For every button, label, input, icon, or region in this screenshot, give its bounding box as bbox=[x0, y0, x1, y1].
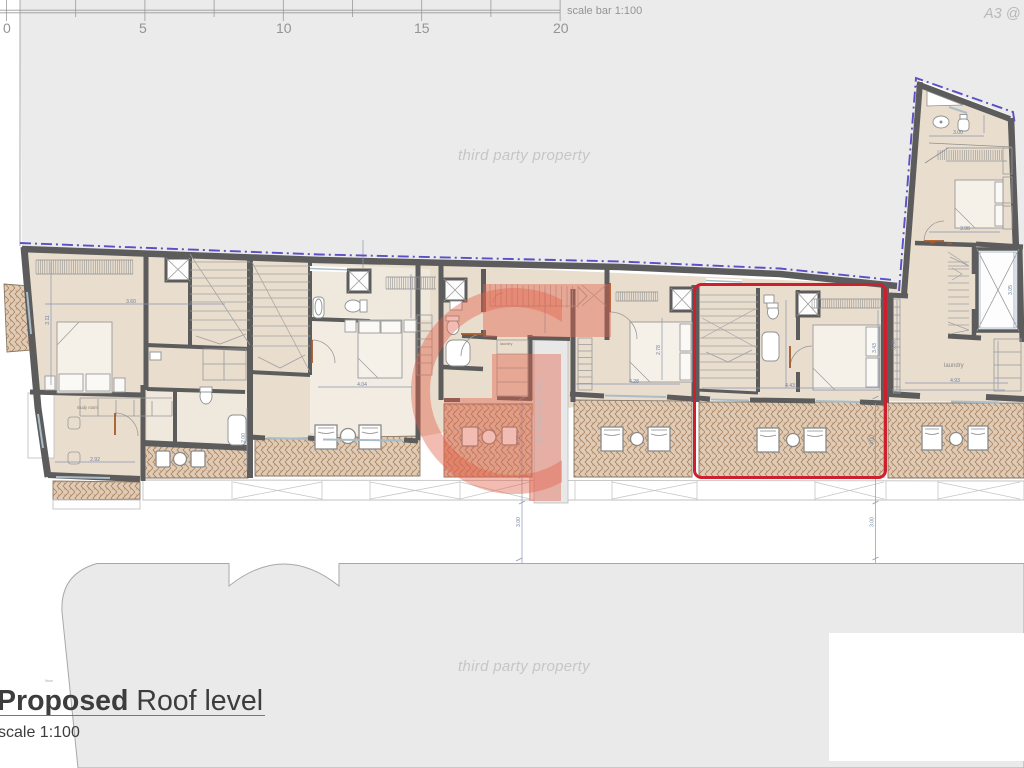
svg-text:3.00: 3.00 bbox=[870, 517, 876, 527]
svg-text:3.98: 3.98 bbox=[960, 226, 970, 232]
svg-text:2.92: 2.92 bbox=[90, 457, 100, 463]
svg-text:2.00: 2.00 bbox=[241, 433, 247, 443]
svg-text:20: 20 bbox=[553, 20, 569, 36]
svg-text:study room: study room bbox=[77, 405, 98, 410]
svg-text:scale 1:100: scale 1:100 bbox=[0, 724, 80, 741]
svg-text:4.43: 4.43 bbox=[785, 383, 795, 389]
svg-text:third party property: third party property bbox=[536, 377, 543, 444]
svg-text:4.04: 4.04 bbox=[357, 382, 367, 388]
svg-text:4.28: 4.28 bbox=[629, 379, 639, 385]
svg-text:0: 0 bbox=[3, 20, 11, 36]
svg-text:Proposed Roof level: Proposed Roof level bbox=[0, 685, 263, 717]
svg-text:2.78: 2.78 bbox=[656, 345, 662, 355]
svg-text:third party property: third party property bbox=[458, 147, 591, 164]
svg-text:3.05: 3.05 bbox=[1008, 285, 1014, 295]
svg-text:3.00: 3.00 bbox=[870, 435, 876, 445]
svg-text:laundry: laundry bbox=[500, 342, 513, 346]
svg-text:third party property: third party property bbox=[458, 658, 591, 675]
svg-text:3.11: 3.11 bbox=[45, 315, 51, 325]
svg-text:4.93: 4.93 bbox=[950, 378, 960, 384]
svg-text:A3 @: A3 @ bbox=[983, 6, 1020, 22]
svg-text:3.43: 3.43 bbox=[872, 343, 878, 353]
svg-text:3.00: 3.00 bbox=[953, 130, 963, 136]
svg-text:3.00: 3.00 bbox=[516, 517, 522, 527]
svg-text:laundry: laundry bbox=[944, 363, 964, 369]
svg-text:10: 10 bbox=[276, 20, 292, 36]
svg-text:Nwm: Nwm bbox=[45, 679, 53, 683]
svg-text:3.60: 3.60 bbox=[126, 299, 136, 305]
svg-text:5: 5 bbox=[139, 20, 147, 36]
svg-text:3.38: 3.38 bbox=[892, 340, 898, 350]
svg-text:15: 15 bbox=[414, 20, 430, 36]
svg-text:scale bar 1:100: scale bar 1:100 bbox=[567, 5, 642, 17]
